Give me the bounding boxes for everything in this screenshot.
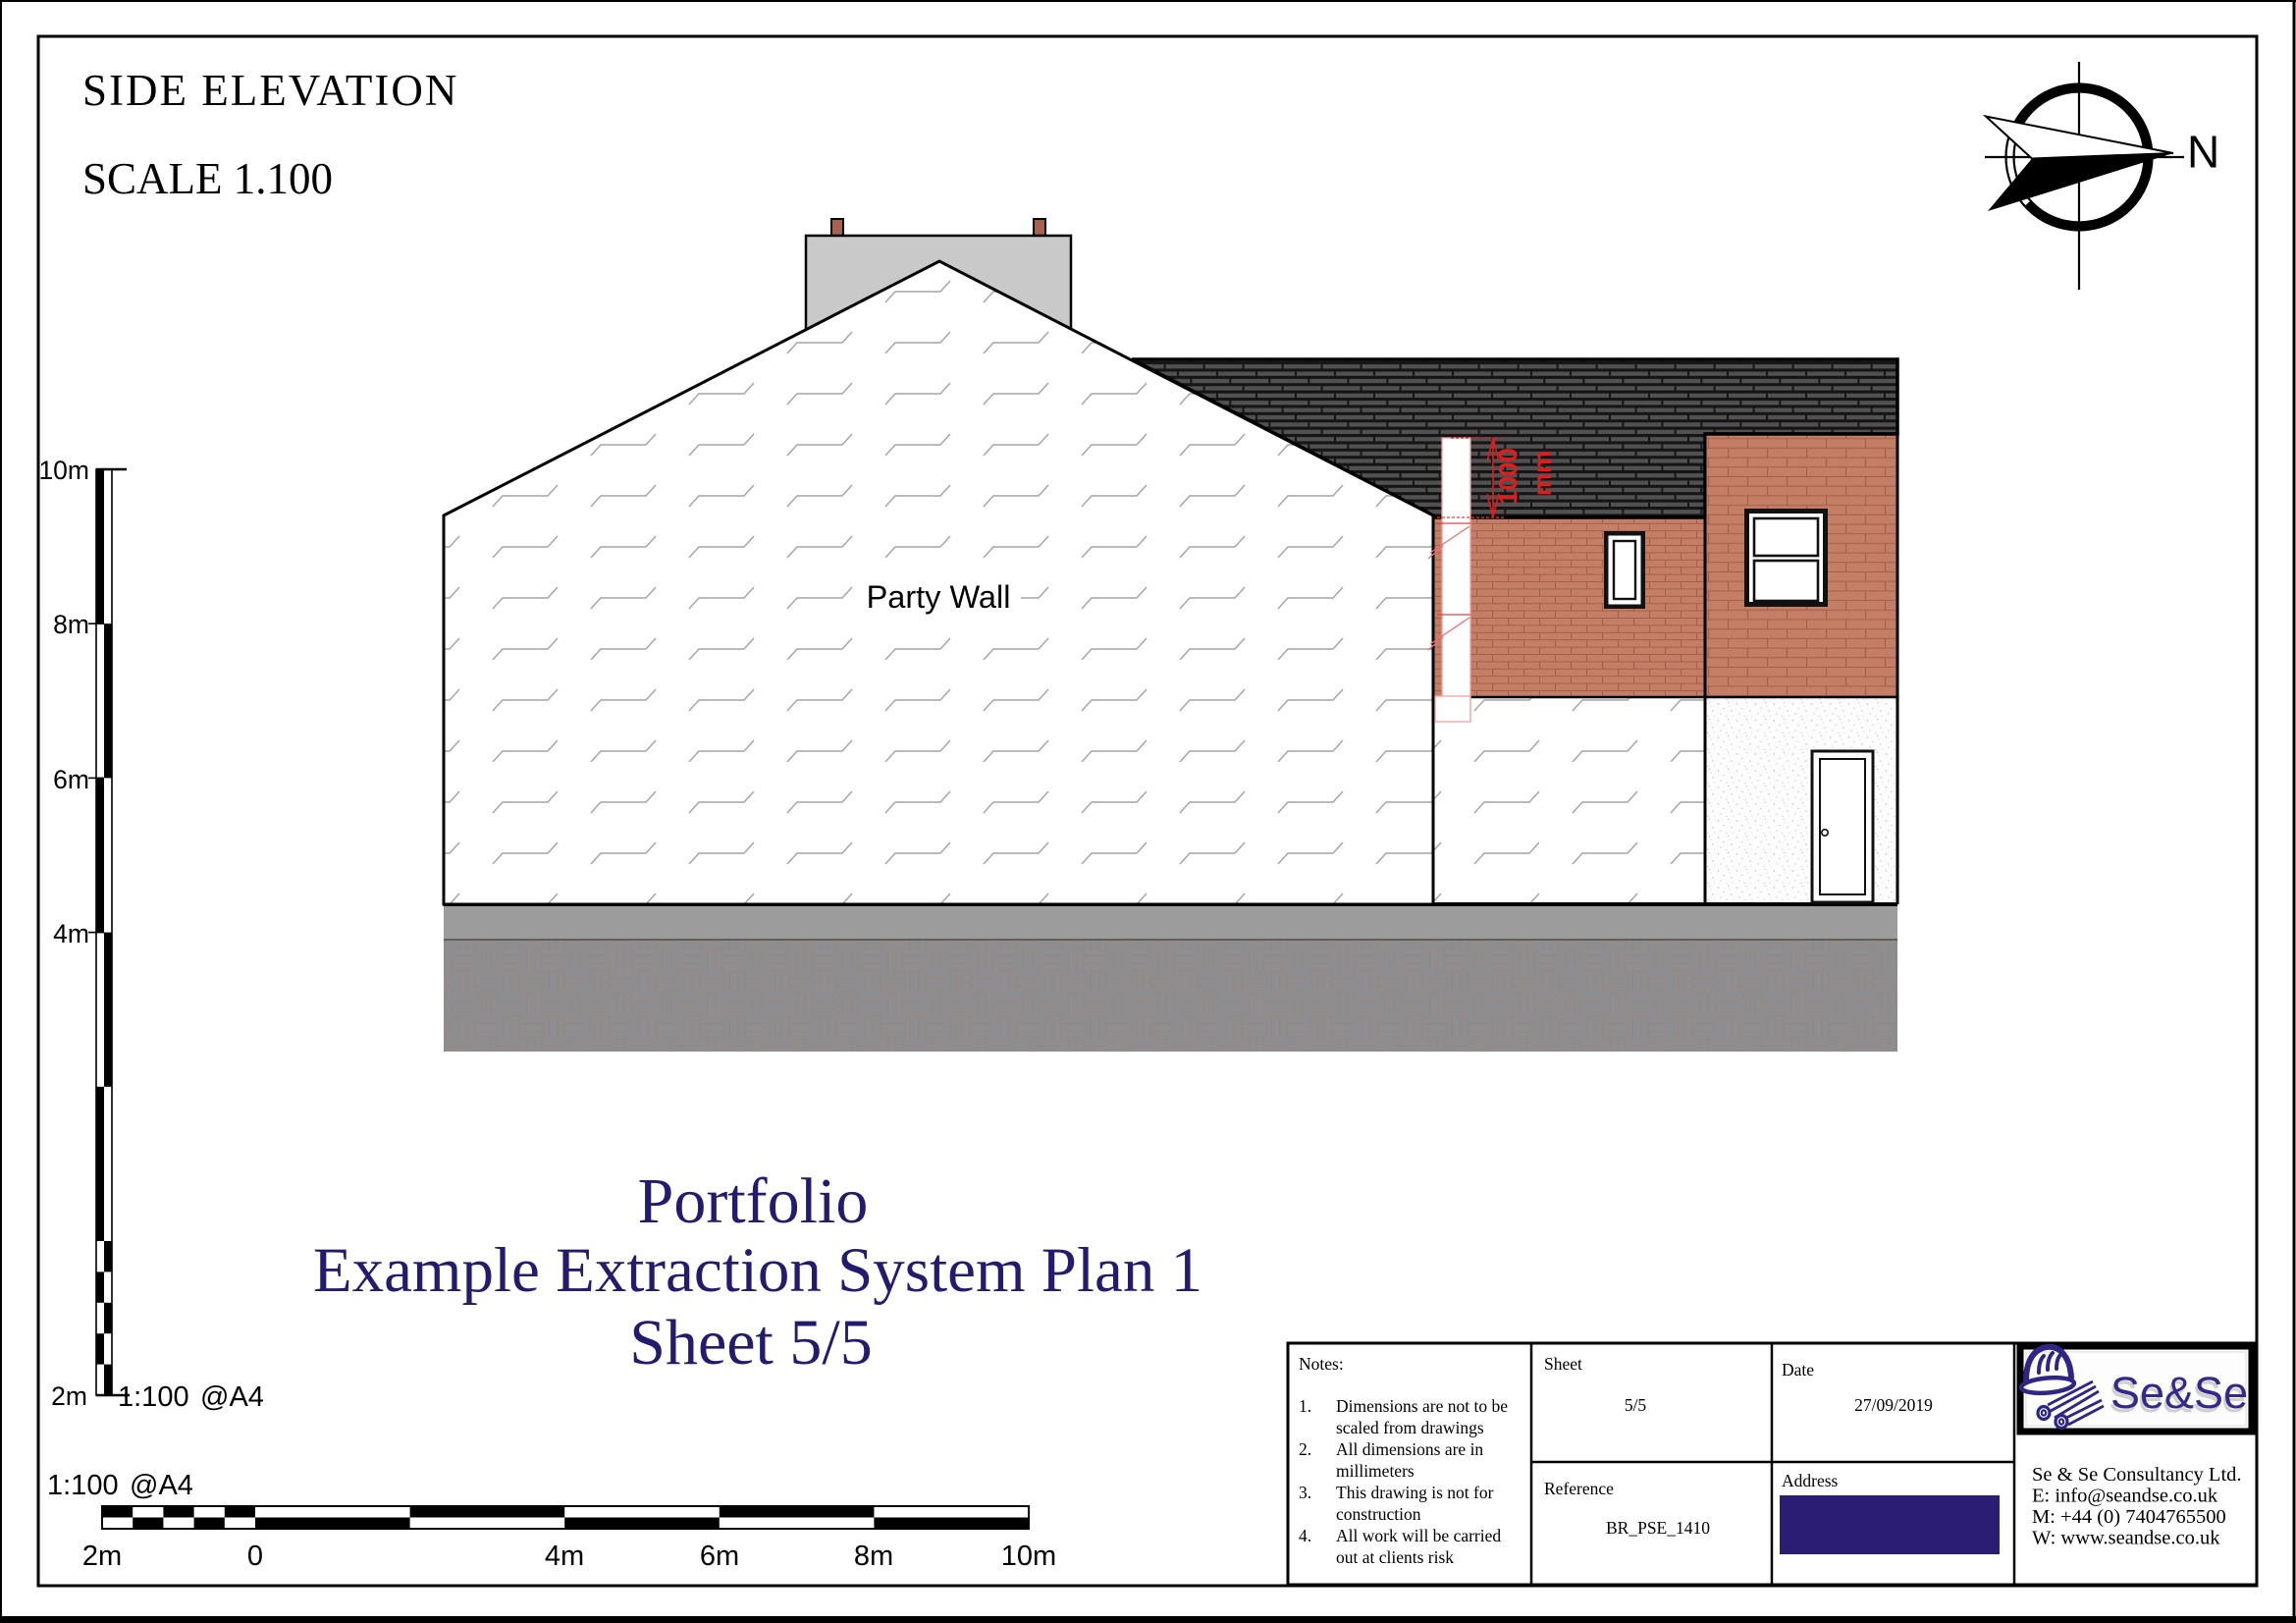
svg-text:5/5: 5/5 [1625,1395,1647,1415]
svg-text:8m: 8m [53,610,89,639]
svg-text:SCALE 1.100: SCALE 1.100 [82,154,333,203]
svg-text:3.: 3. [1299,1483,1311,1502]
svg-text:N: N [2187,127,2219,178]
svg-text:M: +44 (0) 7404765500: M: +44 (0) 7404765500 [2032,1506,2226,1528]
svg-text:All dimensions are in: All dimensions are in [1336,1439,1483,1459]
svg-text:Se & Se Consultancy Ltd.: Se & Se Consultancy Ltd. [2032,1464,2242,1486]
svg-text:Date: Date [1782,1360,1814,1380]
svg-text:construction: construction [1336,1504,1421,1524]
svg-text:1:100: 1:100 [47,1470,119,1501]
svg-text:E: info@seandse.co.uk: E: info@seandse.co.uk [2032,1486,2218,1507]
svg-text:Notes:: Notes: [1299,1354,1344,1374]
svg-text:1:100: 1:100 [118,1381,189,1413]
svg-text:Address: Address [1782,1471,1839,1490]
svg-text:All work will be carried: All work will be carried [1336,1526,1501,1545]
svg-text:2.: 2. [1299,1439,1311,1459]
svg-text:0: 0 [247,1541,263,1572]
svg-text:BR_PSE_1410: BR_PSE_1410 [1606,1518,1710,1538]
svg-text:Portfolio: Portfolio [638,1165,869,1237]
svg-text:@A4: @A4 [130,1470,193,1501]
svg-text:6m: 6m [53,765,89,794]
svg-text:scaled from drawings: scaled from drawings [1336,1418,1484,1437]
svg-text:Sheet 5/5: Sheet 5/5 [629,1307,872,1379]
svg-text:6m: 6m [700,1541,739,1572]
svg-text:Dimensions are not to be: Dimensions are not to be [1336,1396,1508,1416]
svg-text:10m: 10m [38,456,89,485]
svg-text:Example Extraction System Plan: Example Extraction System Plan 1 [313,1235,1202,1306]
svg-text:4m: 4m [545,1541,584,1572]
svg-text:Se&Se: Se&Se [2110,1368,2248,1418]
svg-text:SIDE ELEVATION: SIDE ELEVATION [82,66,458,115]
svg-text:4.: 4. [1299,1526,1311,1545]
svg-text:2m: 2m [82,1541,122,1572]
svg-text:27/09/2019: 27/09/2019 [1854,1395,1933,1415]
svg-text:8m: 8m [854,1541,893,1572]
svg-text:out at clients risk: out at clients risk [1336,1547,1454,1567]
svg-text:millimeters: millimeters [1336,1461,1415,1481]
svg-text:1.: 1. [1299,1396,1311,1416]
svg-text:This drawing is not for: This drawing is not for [1336,1483,1494,1502]
svg-text:mm: mm [1527,451,1557,496]
svg-text:W: www.seandse.co.uk: W: www.seandse.co.uk [2032,1528,2220,1549]
svg-text:2m: 2m [51,1381,87,1411]
svg-text:4m: 4m [53,919,89,948]
svg-text:@A4: @A4 [200,1381,264,1413]
svg-text:Reference: Reference [1544,1479,1614,1498]
svg-text:Sheet: Sheet [1544,1354,1582,1374]
svg-text:Party Wall: Party Wall [867,579,1011,615]
svg-text:1000: 1000 [1493,448,1522,505]
svg-text:10m: 10m [1001,1541,1056,1572]
